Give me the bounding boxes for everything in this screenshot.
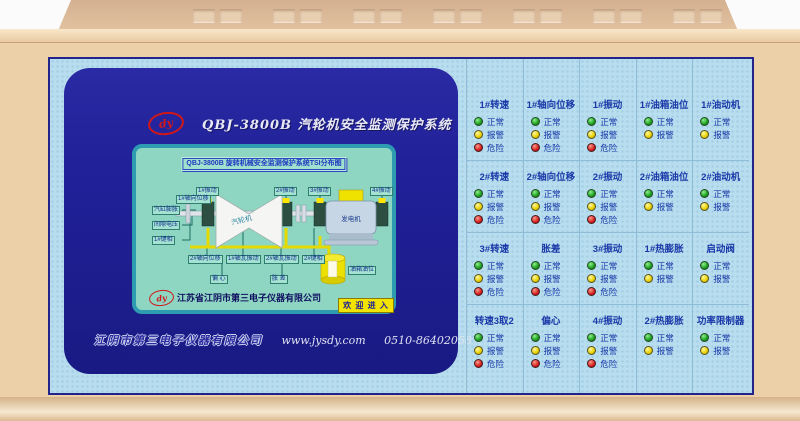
device: dy QBJ-3800B 汽轮机安全监测保护系统 xyxy=(0,0,800,421)
indicator-cell: 3#转速正常报警危险 xyxy=(466,232,523,304)
status-label: 正常 xyxy=(544,188,561,200)
status-dot-icon xyxy=(474,143,483,152)
status-light: 报警 xyxy=(466,128,523,141)
status-light: 报警 xyxy=(579,128,636,141)
status-light: 正常 xyxy=(579,331,636,344)
sensor-label: 2#轴瓦振动 xyxy=(264,255,299,264)
status-light: 危险 xyxy=(466,285,523,298)
status-label: 正常 xyxy=(600,116,617,128)
status-label: 正常 xyxy=(600,332,617,344)
status-light: 危险 xyxy=(523,213,580,226)
indicator-title: 2#油动机 xyxy=(692,169,749,182)
status-label: 报警 xyxy=(544,273,561,285)
vent-slot xyxy=(700,9,722,23)
grid-divider xyxy=(579,59,580,393)
grid-divider xyxy=(692,59,693,393)
enter-button[interactable]: 欢 迎 进 入 xyxy=(338,298,394,313)
status-label: 报警 xyxy=(544,201,561,213)
status-dot-icon xyxy=(531,346,540,355)
status-label: 报警 xyxy=(657,345,674,357)
status-light: 报警 xyxy=(466,272,523,285)
status-label: 报警 xyxy=(600,201,617,213)
status-dot-icon xyxy=(587,274,596,283)
indicator-cell: 4#振动正常报警危险 xyxy=(579,304,636,376)
sensor-label: 1#轴向位移 xyxy=(176,195,211,204)
status-dot-icon xyxy=(644,274,653,283)
status-dot-icon xyxy=(587,202,596,211)
tank-label: 油箱油位 xyxy=(348,266,376,275)
indicator-title: 功率限制器 xyxy=(692,313,749,326)
indicator-title: 1#转速 xyxy=(466,97,523,110)
status-dot-icon xyxy=(587,287,596,296)
status-light: 危险 xyxy=(579,213,636,226)
status-light: 正常 xyxy=(523,115,580,128)
status-dot-icon xyxy=(531,143,540,152)
status-dot-icon xyxy=(700,333,709,342)
status-label: 报警 xyxy=(713,129,730,141)
status-dot-icon xyxy=(531,202,540,211)
status-label: 报警 xyxy=(657,129,674,141)
indicator-title: 3#转速 xyxy=(466,241,523,254)
indicator-cell: 2#热膨胀正常报警 xyxy=(636,304,693,376)
status-light: 报警 xyxy=(636,128,693,141)
indicator-cell: 功率限制器正常报警 xyxy=(692,304,749,376)
status-light: 正常 xyxy=(636,187,693,200)
status-label: 报警 xyxy=(487,201,504,213)
status-light: 危险 xyxy=(523,141,580,154)
status-label: 报警 xyxy=(600,345,617,357)
device-top-vent-panel xyxy=(58,0,738,31)
status-label: 报警 xyxy=(600,129,617,141)
status-light: 正常 xyxy=(523,187,580,200)
status-label: 危险 xyxy=(600,286,617,298)
indicator-cell: 胀差正常报警危险 xyxy=(523,232,580,304)
status-dot-icon xyxy=(700,189,709,198)
status-label: 报警 xyxy=(713,345,730,357)
indicator-title: 2#振动 xyxy=(579,169,636,182)
status-label: 报警 xyxy=(487,129,504,141)
status-label: 危险 xyxy=(600,214,617,226)
status-label: 正常 xyxy=(487,116,504,128)
sensor-label: 1#轴瓦振动 xyxy=(226,255,261,264)
status-light: 正常 xyxy=(466,259,523,272)
company-logo-text: dy xyxy=(156,292,168,303)
status-label: 报警 xyxy=(657,201,674,213)
status-label: 报警 xyxy=(600,273,617,285)
status-label: 报警 xyxy=(657,273,674,285)
status-label: 危险 xyxy=(487,142,504,154)
status-label: 正常 xyxy=(713,188,730,200)
status-light: 正常 xyxy=(579,187,636,200)
status-dot-icon xyxy=(531,215,540,224)
sensor-label: 4#振动 xyxy=(370,187,393,196)
status-light: 报警 xyxy=(523,128,580,141)
status-dot-icon xyxy=(531,189,540,198)
indicator-title: 偏心 xyxy=(523,313,580,326)
status-light: 正常 xyxy=(636,259,693,272)
status-label: 正常 xyxy=(544,116,561,128)
indicator-title: 1#振动 xyxy=(579,97,636,110)
status-light: 正常 xyxy=(466,187,523,200)
status-dot-icon xyxy=(531,333,540,342)
status-light: 报警 xyxy=(636,272,693,285)
grid-divider xyxy=(466,232,749,233)
sensor-label: 间隙电压 xyxy=(152,221,180,230)
indicator-title: 4#振动 xyxy=(579,313,636,326)
indicator-cell: 1#转速正常报警危险 xyxy=(466,88,523,160)
status-label: 正常 xyxy=(487,260,504,272)
status-label: 危险 xyxy=(600,142,617,154)
status-label: 正常 xyxy=(657,260,674,272)
status-light: 正常 xyxy=(692,331,749,344)
device-face: dy QBJ-3800B 汽轮机安全监测保护系统 xyxy=(0,29,800,421)
status-label: 正常 xyxy=(657,116,674,128)
status-dot-icon xyxy=(474,274,483,283)
status-label: 正常 xyxy=(713,332,730,344)
brand-logo-icon: dy xyxy=(147,110,186,138)
status-light: 危险 xyxy=(579,357,636,370)
status-light: 报警 xyxy=(692,272,749,285)
status-dot-icon xyxy=(644,189,653,198)
status-label: 危险 xyxy=(487,214,504,226)
status-label: 报警 xyxy=(713,273,730,285)
status-label: 正常 xyxy=(713,116,730,128)
screen-footer: 江阴市第三电子仪器有限公司 www.jysdy.com 0510-8640205… xyxy=(94,331,438,349)
indicator-cell: 3#振动正常报警危险 xyxy=(579,232,636,304)
vent-slot xyxy=(273,9,295,23)
inner-panel: dy QBJ-3800B 汽轮机安全监测保护系统 xyxy=(48,57,754,395)
indicator-title: 1#热膨胀 xyxy=(636,241,693,254)
display-screen: dy QBJ-3800B 汽轮机安全监测保护系统 xyxy=(64,68,458,374)
vent-slot xyxy=(460,9,482,23)
indicator-cell: 1#油箱油位正常报警 xyxy=(636,88,693,160)
status-label: 危险 xyxy=(544,358,561,370)
status-light: 危险 xyxy=(466,213,523,226)
status-label: 正常 xyxy=(544,332,561,344)
status-dot-icon xyxy=(644,117,653,126)
status-light: 报警 xyxy=(636,200,693,213)
status-label: 危险 xyxy=(544,214,561,226)
status-light: 报警 xyxy=(579,200,636,213)
indicator-cell: 转速3取2正常报警危险 xyxy=(466,304,523,376)
indicator-title: 1#轴向位移 xyxy=(523,97,580,110)
status-label: 危险 xyxy=(487,358,504,370)
vent-slot xyxy=(746,9,768,23)
status-dot-icon xyxy=(474,261,483,270)
status-label: 正常 xyxy=(487,332,504,344)
status-dot-icon xyxy=(474,287,483,296)
status-light: 报警 xyxy=(523,344,580,357)
status-dot-icon xyxy=(474,359,483,368)
vent-slot xyxy=(300,9,322,23)
grid-divider xyxy=(466,160,749,161)
footer-company: 江阴市第三电子仪器有限公司 xyxy=(94,334,263,347)
indicator-cell: 2#油箱油位正常报警 xyxy=(636,160,693,232)
status-dot-icon xyxy=(531,130,540,139)
vent-slot xyxy=(593,9,615,23)
status-light: 报警 xyxy=(636,344,693,357)
grid-divider xyxy=(466,59,467,393)
status-dot-icon xyxy=(474,202,483,211)
status-label: 正常 xyxy=(657,332,674,344)
indicator-title: 2#轴向位移 xyxy=(523,169,580,182)
status-light: 危险 xyxy=(523,285,580,298)
status-dot-icon xyxy=(700,346,709,355)
status-light: 正常 xyxy=(692,259,749,272)
status-dot-icon xyxy=(474,215,483,224)
status-label: 危险 xyxy=(544,142,561,154)
grid-divider xyxy=(523,59,524,393)
status-dot-icon xyxy=(531,117,540,126)
status-light: 报警 xyxy=(523,200,580,213)
status-label: 正常 xyxy=(600,188,617,200)
status-light: 正常 xyxy=(466,331,523,344)
status-light: 正常 xyxy=(523,259,580,272)
indicator-title: 2#热膨胀 xyxy=(636,313,693,326)
status-light: 危险 xyxy=(579,285,636,298)
status-dot-icon xyxy=(644,261,653,270)
status-light: 正常 xyxy=(579,259,636,272)
status-dot-icon xyxy=(474,189,483,198)
status-dot-icon xyxy=(644,130,653,139)
status-dot-icon xyxy=(587,346,596,355)
indicator-title: 2#转速 xyxy=(466,169,523,182)
indicator-cell: 2#振动正常报警危险 xyxy=(579,160,636,232)
indicator-cell: 启动阀正常报警 xyxy=(692,232,749,304)
sensor-label: 3#振动 xyxy=(308,187,331,196)
indicator-cell: 1#热膨胀正常报警 xyxy=(636,232,693,304)
mimic-title-bar: QBJ-3800B 旋转机械安全监测保护系统TSI分布图 xyxy=(182,158,345,170)
status-dot-icon xyxy=(700,274,709,283)
vent-slot xyxy=(220,9,242,23)
status-dot-icon xyxy=(587,189,596,198)
status-label: 正常 xyxy=(657,188,674,200)
vent-slot xyxy=(773,9,795,23)
grid-divider xyxy=(636,59,637,393)
status-label: 危险 xyxy=(544,286,561,298)
status-label: 报警 xyxy=(487,273,504,285)
status-light: 正常 xyxy=(466,115,523,128)
footer-url: www.jysdy.com xyxy=(281,334,365,347)
indicator-cell: 1#轴向位移正常报警危险 xyxy=(523,88,580,160)
status-label: 危险 xyxy=(487,286,504,298)
status-light: 报警 xyxy=(523,272,580,285)
indicator-title: 启动阀 xyxy=(692,241,749,254)
status-light: 危险 xyxy=(466,357,523,370)
sensor-label: 2#振动 xyxy=(274,187,297,196)
status-light: 正常 xyxy=(636,115,693,128)
sensor-label: 1#键相 xyxy=(152,236,175,245)
status-light: 报警 xyxy=(466,344,523,357)
indicator-title: 胀差 xyxy=(523,241,580,254)
status-dot-icon xyxy=(474,117,483,126)
vent-slot xyxy=(513,9,535,23)
vent-slot xyxy=(353,9,375,23)
status-label: 报警 xyxy=(544,345,561,357)
footer-phone: 0510-86402058 xyxy=(384,334,472,347)
status-dot-icon xyxy=(531,261,540,270)
status-light: 正常 xyxy=(692,115,749,128)
sensor-label: 汽缸膨胀 xyxy=(152,206,180,215)
status-light: 正常 xyxy=(523,331,580,344)
status-dot-icon xyxy=(587,117,596,126)
sensor-label: 2#轴向位移 xyxy=(188,255,223,264)
sensor-label: 2#键相 xyxy=(302,255,325,264)
status-label: 危险 xyxy=(600,358,617,370)
status-dot-icon xyxy=(587,215,596,224)
status-dot-icon xyxy=(587,333,596,342)
status-light: 危险 xyxy=(579,141,636,154)
status-light: 正常 xyxy=(579,115,636,128)
mimic-screen: 汽轮机 发电机 xyxy=(132,144,396,314)
vent-slot xyxy=(193,9,215,23)
status-label: 正常 xyxy=(487,188,504,200)
status-label: 正常 xyxy=(600,260,617,272)
status-dot-icon xyxy=(531,274,540,283)
brand-logo-text: dy xyxy=(158,116,174,131)
indicator-cell: 2#转速正常报警危险 xyxy=(466,160,523,232)
status-light: 报警 xyxy=(692,344,749,357)
indicator-cell: 偏心正常报警危险 xyxy=(523,304,580,376)
status-light: 危险 xyxy=(523,357,580,370)
header-title: QBJ-3800B 汽轮机安全监测保护系统 xyxy=(202,114,452,133)
indicator-title: 2#油箱油位 xyxy=(636,169,693,182)
indicator-title: 1#油动机 xyxy=(692,97,749,110)
status-label: 报警 xyxy=(713,201,730,213)
status-light: 正常 xyxy=(636,331,693,344)
generator-label: 发电机 xyxy=(341,214,361,223)
vent-slot xyxy=(433,9,455,23)
status-dot-icon xyxy=(474,333,483,342)
company-name: 江苏省江阴市第三电子仪器有限公司 xyxy=(177,291,321,304)
status-dot-icon xyxy=(644,333,653,342)
status-light: 正常 xyxy=(692,187,749,200)
vent-slot xyxy=(380,9,402,23)
indicator-cell: 2#油动机正常报警 xyxy=(692,160,749,232)
status-light: 危险 xyxy=(466,141,523,154)
indicator-cell: 1#振动正常报警危险 xyxy=(579,88,636,160)
status-label: 正常 xyxy=(713,260,730,272)
status-light: 报警 xyxy=(692,128,749,141)
vent-slot xyxy=(540,9,562,23)
sensor-label: 偏 心 xyxy=(210,275,228,284)
status-light: 报警 xyxy=(579,344,636,357)
status-dot-icon xyxy=(644,202,653,211)
status-dot-icon xyxy=(700,261,709,270)
indicator-title: 3#振动 xyxy=(579,241,636,254)
vent-slot xyxy=(673,9,695,23)
status-dot-icon xyxy=(700,130,709,139)
status-dot-icon xyxy=(700,202,709,211)
status-label: 正常 xyxy=(544,260,561,272)
indicator-title: 转速3取2 xyxy=(466,313,523,326)
status-light: 报警 xyxy=(579,272,636,285)
status-dot-icon xyxy=(531,359,540,368)
status-dot-icon xyxy=(587,130,596,139)
status-dot-icon xyxy=(474,346,483,355)
status-dot-icon xyxy=(587,143,596,152)
status-dot-icon xyxy=(531,287,540,296)
status-dot-icon xyxy=(587,261,596,270)
status-dot-icon xyxy=(474,130,483,139)
indicator-title: 1#油箱油位 xyxy=(636,97,693,110)
status-label: 报警 xyxy=(544,129,561,141)
grid-divider xyxy=(466,304,749,305)
status-light: 报警 xyxy=(466,200,523,213)
status-dot-icon xyxy=(644,346,653,355)
sensor-label: 胀 差 xyxy=(270,275,288,284)
vent-slot xyxy=(620,9,642,23)
status-dot-icon xyxy=(587,359,596,368)
status-dot-icon xyxy=(700,117,709,126)
indicator-cell: 1#油动机正常报警 xyxy=(692,88,749,160)
status-label: 报警 xyxy=(487,345,504,357)
diagram-layer: 汽轮机 发电机 xyxy=(136,148,392,310)
status-light: 报警 xyxy=(692,200,749,213)
indicator-cell: 2#轴向位移正常报警危险 xyxy=(523,160,580,232)
